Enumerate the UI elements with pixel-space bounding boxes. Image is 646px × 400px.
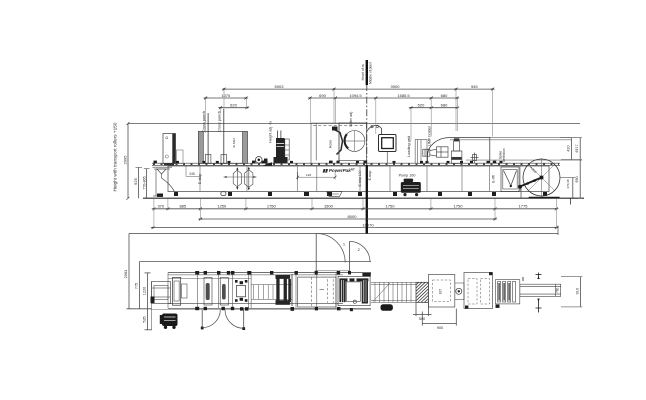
svg-text:4917: 4917 (575, 144, 579, 152)
svg-text:Pump 100: Pump 100 (399, 173, 416, 177)
svg-text:Middle of plant: Middle of plant (369, 62, 373, 84)
svg-text:Loading grid: Loading grid (407, 136, 411, 157)
svg-text:3900: 3900 (391, 84, 401, 89)
svg-text:2: 2 (358, 247, 361, 252)
svg-text:1750: 1750 (267, 204, 277, 209)
svg-text:Hose: Hose (329, 140, 333, 148)
svg-text:E-skip: E-skip (197, 174, 202, 185)
svg-text:1: 1 (343, 242, 346, 247)
svg-text:680: 680 (441, 93, 448, 98)
svg-text:370: 370 (157, 204, 164, 209)
svg-text:1585.5: 1585.5 (397, 93, 410, 98)
svg-text:885: 885 (179, 204, 186, 209)
svg-text:1070: 1070 (221, 93, 231, 98)
svg-text:E-lift: E-lift (492, 175, 496, 182)
svg-text:760: 760 (555, 288, 559, 294)
svg-text:680: 680 (441, 103, 448, 108)
svg-text:470,38: 470,38 (566, 179, 570, 189)
svg-text:420: 420 (566, 145, 570, 151)
svg-text:Slitter adj.: Slitter adj. (349, 111, 353, 127)
svg-text:837: 837 (439, 289, 443, 295)
svg-text:8000: 8000 (348, 214, 358, 219)
svg-text:▮▮ PowerPakRT: ▮▮ PowerPakRT (323, 168, 356, 174)
svg-text:1750: 1750 (454, 204, 464, 209)
svg-text:detection: detection (502, 148, 506, 162)
svg-text:Cross punch: Cross punch (218, 111, 222, 132)
svg-text:620: 620 (230, 103, 237, 108)
svg-text:1750: 1750 (386, 204, 396, 209)
svg-text:1094.5: 1094.5 (349, 93, 362, 98)
svg-text:2095: 2095 (122, 155, 127, 165)
svg-text:4x M12: 4x M12 (232, 138, 236, 148)
svg-text:245: 245 (189, 172, 195, 176)
svg-text:1500: 1500 (324, 204, 334, 209)
svg-text:2083: 2083 (124, 270, 128, 278)
svg-text:E-stop: E-stop (368, 170, 372, 180)
svg-text:945: 945 (471, 84, 478, 89)
svg-text:Height adj. 4x: Height adj. 4x (269, 121, 273, 143)
svg-text:5903: 5903 (275, 84, 285, 89)
svg-text:Cross punch: Cross punch (202, 111, 206, 132)
svg-text:Heart of m.: Heart of m. (361, 64, 365, 81)
svg-text:Height with transport rollers: Height with transport rollers +150 (113, 122, 118, 191)
svg-text:910: 910 (575, 288, 579, 294)
svg-text:1250: 1250 (217, 204, 227, 209)
svg-text:120: 120 (306, 173, 311, 177)
svg-text:520: 520 (418, 103, 425, 108)
svg-text:770-865: 770-865 (142, 176, 146, 189)
svg-text:10070: 10070 (362, 222, 374, 227)
svg-text:950: 950 (575, 176, 579, 182)
svg-text:A 800: A 800 (529, 166, 538, 175)
svg-text:1220: 1220 (143, 287, 147, 295)
svg-text:900: 900 (437, 326, 443, 330)
svg-text:775: 775 (135, 283, 139, 289)
svg-text:925: 925 (133, 177, 138, 184)
svg-text:1775: 1775 (519, 204, 529, 209)
svg-text:690: 690 (319, 93, 326, 98)
svg-text:535: 535 (143, 316, 147, 322)
svg-text:E-skip 100: E-skip 100 (358, 170, 362, 186)
